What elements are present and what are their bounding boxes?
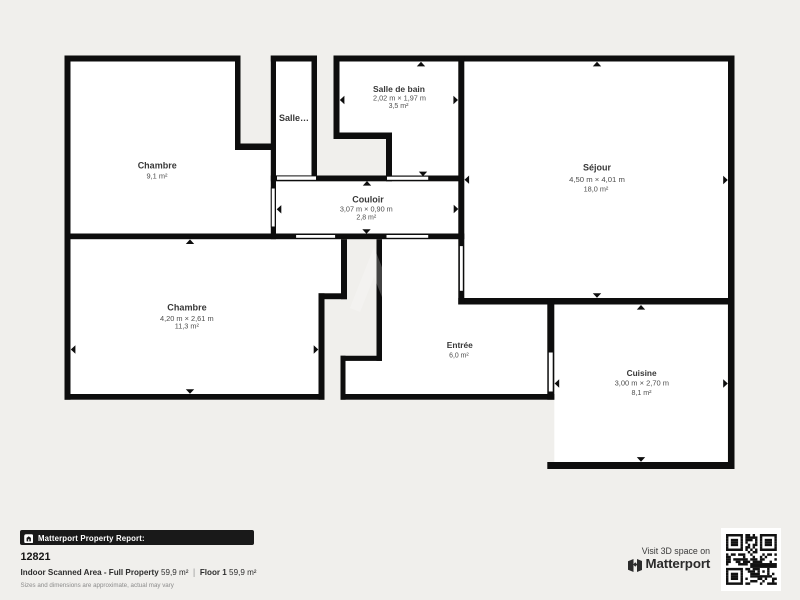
svg-text:Entrée: Entrée: [447, 340, 473, 350]
svg-text:9,1 m²: 9,1 m²: [147, 171, 168, 180]
svg-text:3,00 m × 2,70 m: 3,00 m × 2,70 m: [615, 379, 669, 388]
svg-text:Salle…: Salle…: [279, 113, 309, 123]
svg-text:Cuisine: Cuisine: [627, 368, 657, 378]
svg-text:8,1 m²: 8,1 m²: [631, 389, 652, 397]
svg-text:2,8 m²: 2,8 m²: [356, 215, 377, 222]
svg-text:Couloir: Couloir: [352, 195, 384, 205]
svg-text:2,02 m × 1,97 m: 2,02 m × 1,97 m: [373, 93, 426, 102]
svg-text:6,0 m²: 6,0 m²: [449, 352, 469, 359]
svg-text:11,3 m²: 11,3 m²: [175, 321, 200, 330]
svg-text:Chambre: Chambre: [138, 160, 177, 170]
svg-text:3,07 m × 0,90 m: 3,07 m × 0,90 m: [340, 205, 393, 214]
svg-text:3,5 m²: 3,5 m²: [389, 103, 410, 110]
svg-text:18,0 m²: 18,0 m²: [584, 184, 609, 193]
svg-text:Séjour: Séjour: [583, 163, 612, 173]
svg-text:Chambre: Chambre: [167, 303, 206, 313]
svg-text:4,50 m × 4,01 m: 4,50 m × 4,01 m: [569, 175, 625, 184]
